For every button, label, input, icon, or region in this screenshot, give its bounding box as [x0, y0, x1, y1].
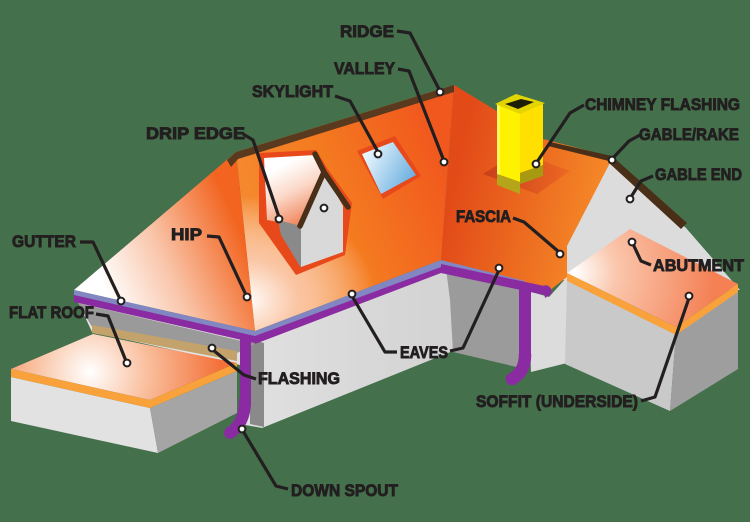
svg-text:CHIMNEY FLASHING: CHIMNEY FLASHING	[585, 95, 740, 114]
svg-text:ABUTMENT: ABUTMENT	[653, 256, 745, 275]
svg-text:GUTTER: GUTTER	[12, 232, 76, 251]
svg-text:DOWN SPOUT: DOWN SPOUT	[291, 481, 399, 500]
svg-text:RIDGE: RIDGE	[340, 22, 394, 41]
svg-text:GABLE END: GABLE END	[655, 165, 742, 184]
svg-text:DRIP EDGE: DRIP EDGE	[146, 124, 245, 143]
svg-text:SOFFIT (UNDERSIDE): SOFFIT (UNDERSIDE)	[476, 392, 638, 411]
svg-text:FLASHING: FLASHING	[258, 369, 340, 388]
svg-text:GABLE/RAKE: GABLE/RAKE	[639, 125, 739, 144]
svg-text:EAVES: EAVES	[400, 343, 448, 362]
svg-text:FLAT ROOF: FLAT ROOF	[9, 303, 94, 322]
svg-text:HIP: HIP	[171, 225, 202, 244]
svg-text:FASCIA: FASCIA	[456, 207, 511, 226]
svg-text:VALLEY: VALLEY	[334, 59, 396, 78]
svg-text:SKYLIGHT: SKYLIGHT	[252, 82, 334, 101]
